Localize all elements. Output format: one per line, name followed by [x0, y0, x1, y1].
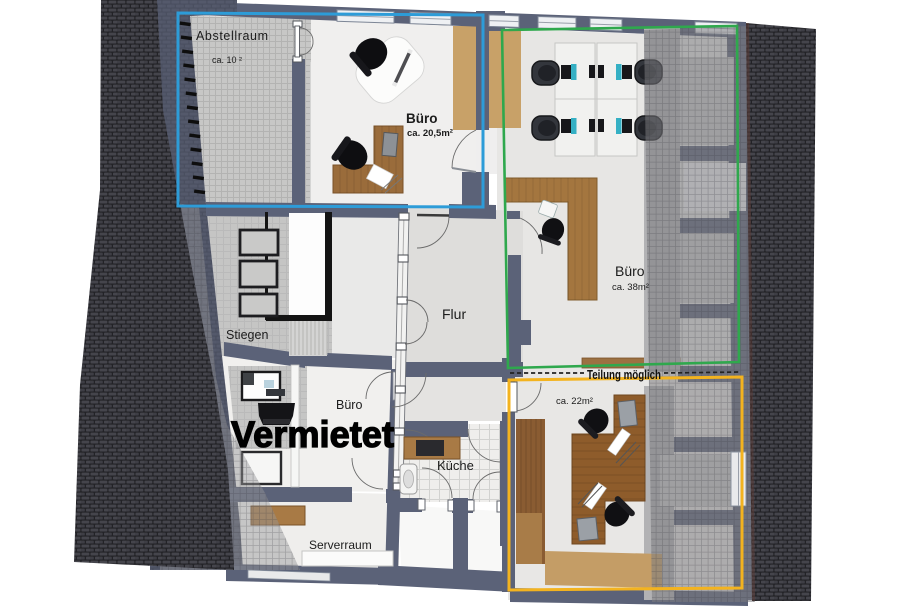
svg-text:ca. 20,5m²: ca. 20,5m²	[407, 128, 453, 139]
svg-text:Teilung möglich: Teilung möglich	[587, 368, 661, 382]
svg-text:ca. 38m²: ca. 38m²	[612, 282, 649, 293]
svg-text:Abstellraum: Abstellraum	[196, 29, 269, 43]
svg-text:Büro: Büro	[406, 111, 438, 126]
svg-text:ca. 22m²: ca. 22m²	[556, 396, 593, 407]
svg-text:Küche: Küche	[437, 458, 474, 473]
svg-text:Büro: Büro	[336, 398, 362, 412]
svg-text:Stiegen: Stiegen	[226, 328, 268, 342]
svg-text:ca. 10 ²: ca. 10 ²	[212, 55, 242, 65]
svg-text:Vermietet: Vermietet	[231, 414, 394, 455]
svg-text:Flur: Flur	[442, 306, 466, 322]
svg-text:Serverraum: Serverraum	[309, 538, 372, 552]
svg-text:Büro: Büro	[615, 263, 645, 279]
